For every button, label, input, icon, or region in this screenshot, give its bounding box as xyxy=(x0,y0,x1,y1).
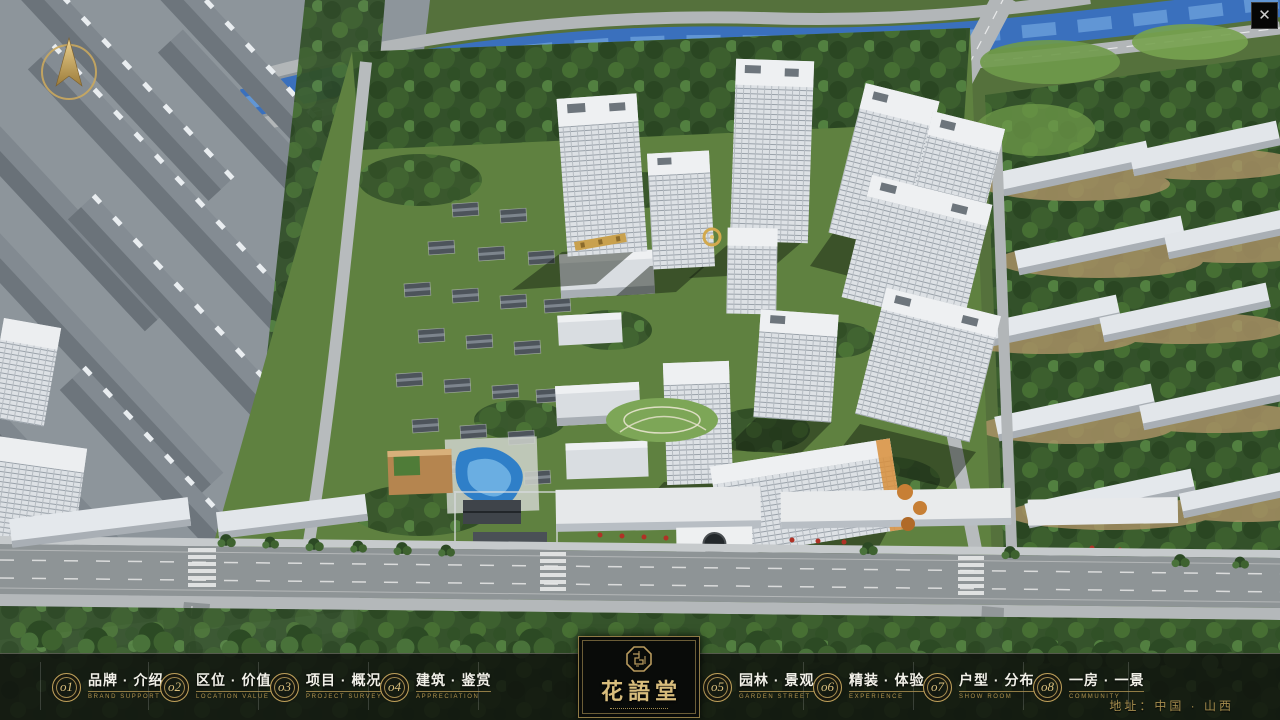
nav-number-badge: o6 xyxy=(813,673,842,702)
nav-number-badge: o3 xyxy=(270,673,299,702)
nav-item-brand[interactable]: o1 品牌 · 介绍 BRAND SUPPORT xyxy=(52,654,163,720)
nav-sublabel: LOCATION VALUE xyxy=(196,691,271,701)
nav-number-badge: o7 xyxy=(923,673,952,702)
brand-seal-icon xyxy=(626,646,652,672)
brand-logo-plaque[interactable]: 花語堂 xyxy=(578,636,700,718)
nav-label: 精装 · 体验 xyxy=(849,673,924,688)
nav-number-badge: o1 xyxy=(52,673,81,702)
nav-sublabel: SHOW ROOM xyxy=(959,691,1034,701)
nav-label: 项目 · 概况 xyxy=(306,673,383,688)
project-address: 地址：中国 · 山西 xyxy=(1109,697,1234,714)
nav-item-interior[interactable]: o6 精装 · 体验 EXPERIENCE xyxy=(813,654,924,720)
nav-sublabel: APPRECIATION xyxy=(416,691,491,701)
nav-sublabel: PROJECT SURVEY xyxy=(306,691,383,701)
nav-number-badge: o2 xyxy=(160,673,189,702)
close-button[interactable]: ✕ xyxy=(1251,2,1278,29)
nav-label: 建筑 · 鉴赏 xyxy=(416,673,491,688)
nav-item-floorplans[interactable]: o7 户型 · 分布 SHOW ROOM xyxy=(923,654,1034,720)
nav-item-project[interactable]: o3 项目 · 概况 PROJECT SURVEY xyxy=(270,654,383,720)
nav-label: 一房 · 一景 xyxy=(1069,673,1144,688)
nav-number-badge: o8 xyxy=(1033,673,1062,702)
nav-label: 园林 · 景观 xyxy=(739,673,814,688)
aerial-masterplan-render xyxy=(0,0,1280,720)
nav-sublabel: GARDEN STREET xyxy=(739,691,814,701)
nav-label: 户型 · 分布 xyxy=(959,673,1034,688)
nav-separator xyxy=(40,662,41,710)
nav-item-architecture[interactable]: o4 建筑 · 鉴赏 APPRECIATION xyxy=(380,654,491,720)
brand-tagline-rule xyxy=(610,708,668,709)
nav-label: 区位 · 价值 xyxy=(196,673,271,688)
nav-sublabel: BRAND SUPPORT xyxy=(88,691,163,701)
nav-item-location[interactable]: o2 区位 · 价值 LOCATION VALUE xyxy=(160,654,271,720)
sales-presentation-screen: ✕ o1 品牌 · 介绍 BRAND SUPPORT o2 区位 · 价值 LO… xyxy=(0,0,1280,720)
nav-number-badge: o4 xyxy=(380,673,409,702)
brand-name: 花語堂 xyxy=(596,674,682,706)
nav-sublabel: EXPERIENCE xyxy=(849,691,924,701)
compass-north-icon xyxy=(30,24,108,110)
nav-number-badge: o5 xyxy=(703,673,732,702)
nav-label: 品牌 · 介绍 xyxy=(88,673,163,688)
nav-item-garden[interactable]: o5 园林 · 景观 GARDEN STREET xyxy=(703,654,814,720)
